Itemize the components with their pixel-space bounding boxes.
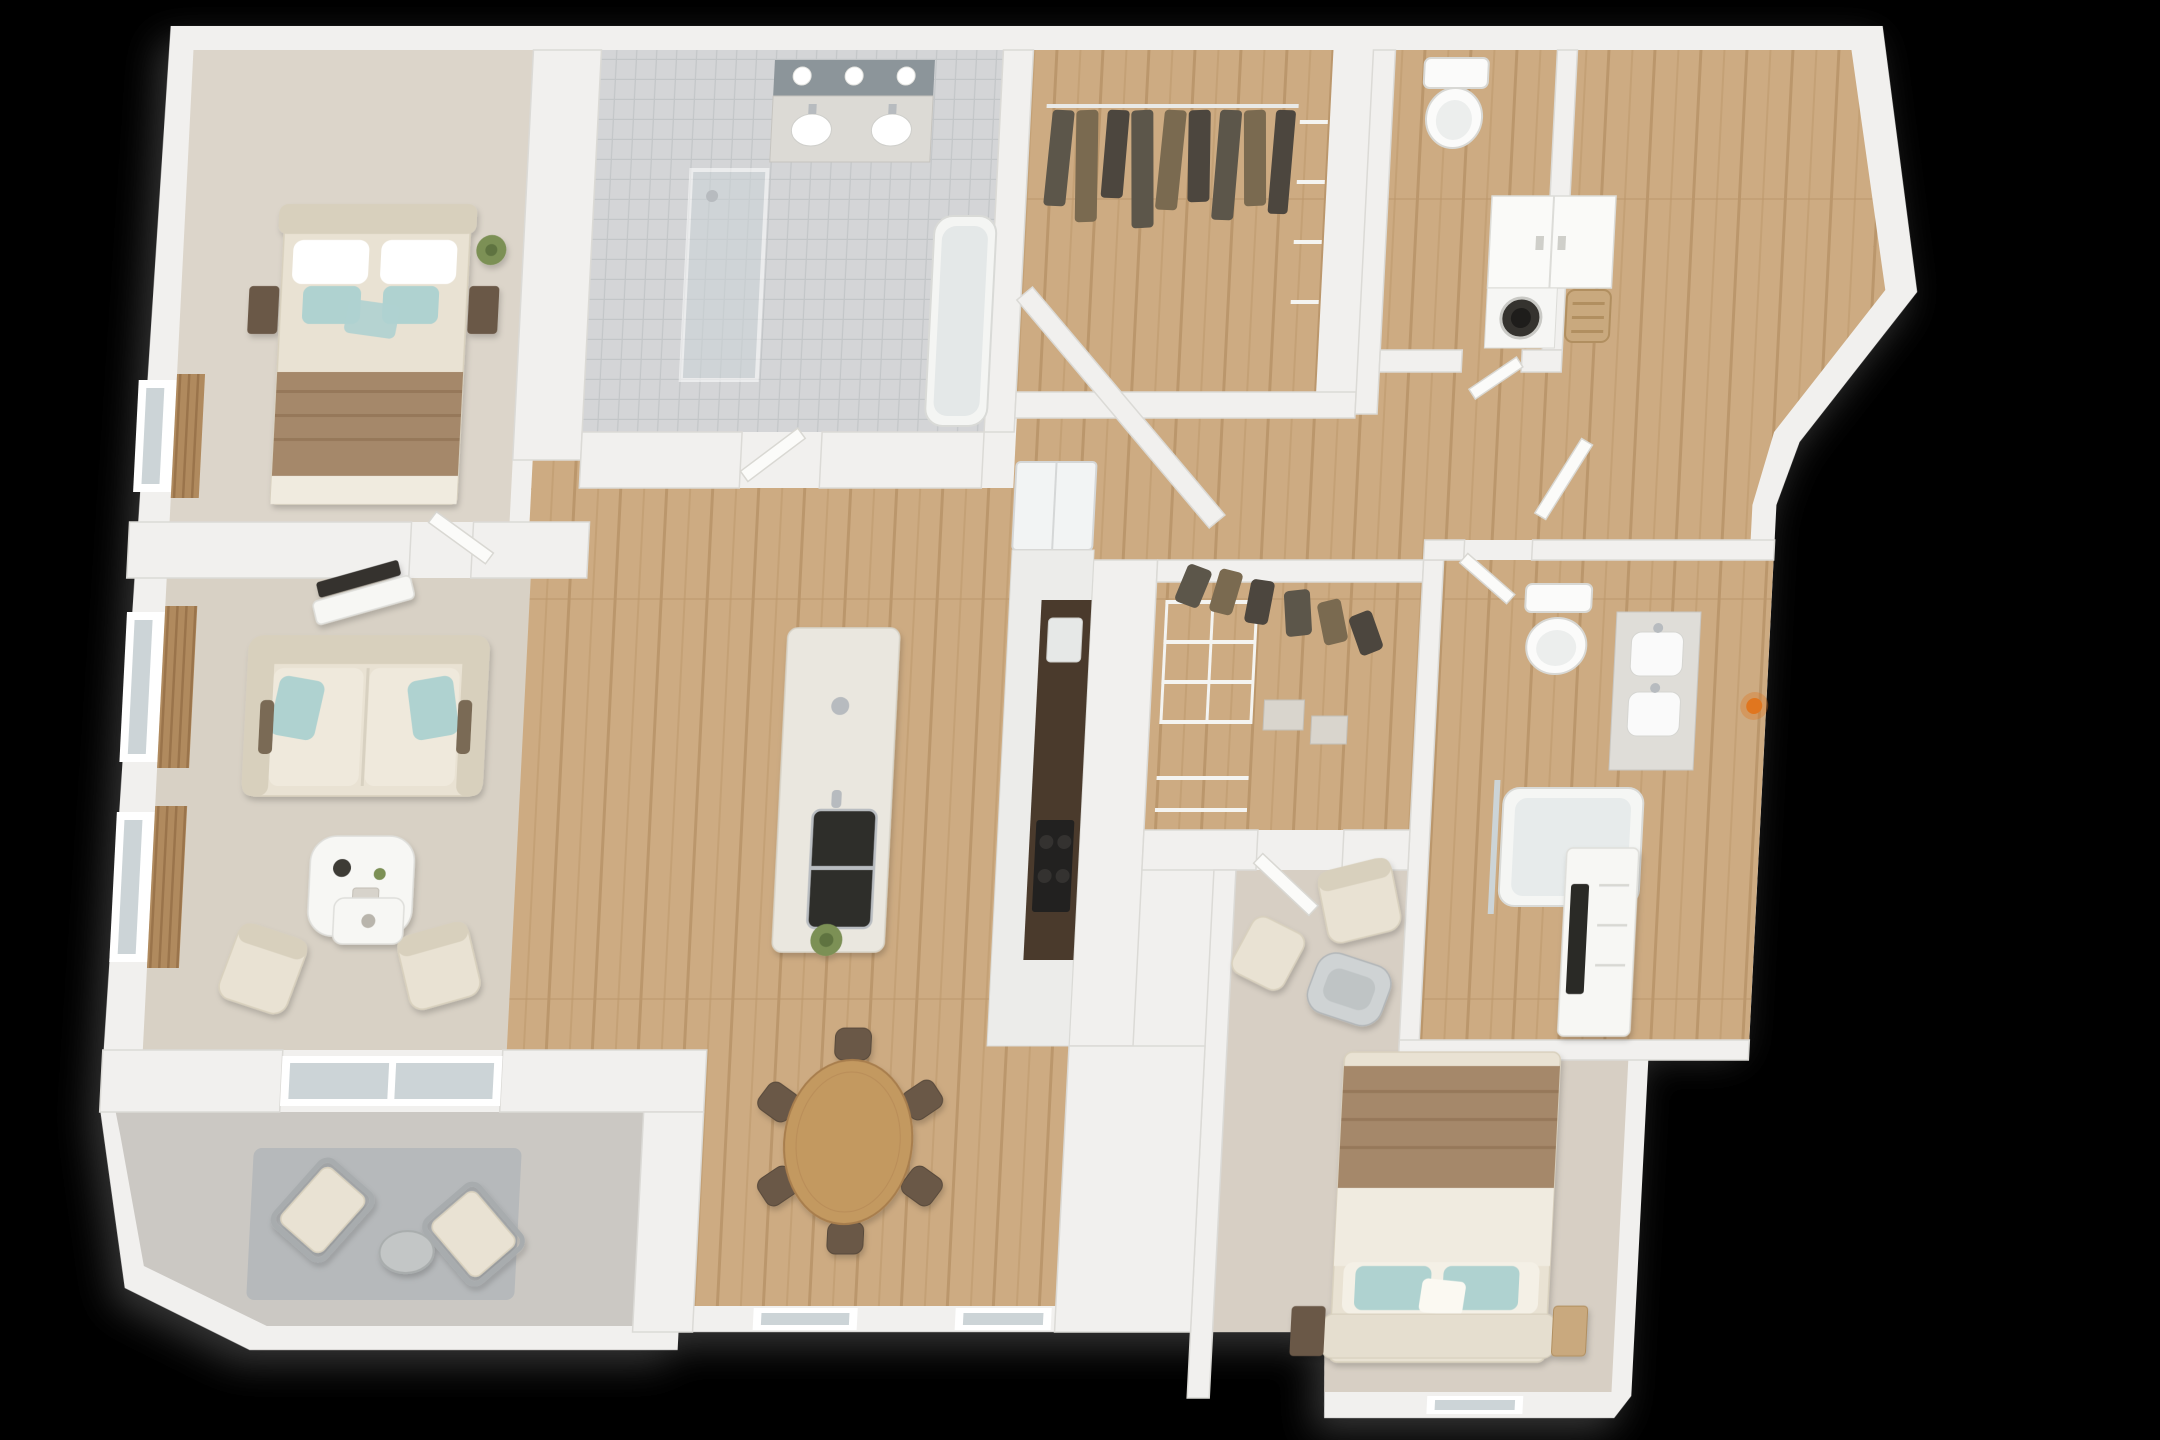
bed2-blanket-stripe [1340, 1146, 1556, 1149]
wall-patio-dining [633, 1112, 704, 1332]
bedroom1-window [133, 374, 205, 498]
wall-living-patio-right [500, 1050, 707, 1112]
dining-window-left [753, 1308, 858, 1330]
closet2-storage-box [1310, 716, 1347, 744]
bath1-faucet-left [808, 104, 817, 114]
sofa-back [248, 636, 489, 664]
patio-side-table [379, 1231, 435, 1273]
bath1-vanity-light [897, 67, 916, 85]
wall-bath1-hall-left [579, 432, 742, 488]
closet1-rod [1047, 104, 1299, 108]
laundry-basket-weave [1573, 302, 1605, 305]
closet1-shelf [1300, 120, 1328, 124]
closet1-clothes [1075, 110, 1099, 223]
closet1-shelf [1294, 240, 1322, 244]
closet2-wire-shelf [1155, 808, 1247, 812]
wall-wc-bottom-left [1379, 350, 1462, 372]
bed2-blanket [1338, 1066, 1560, 1188]
bed1-nightstand-right [467, 286, 499, 334]
sofa-teal-pillow-right [407, 674, 460, 741]
bed1-teal-lumbar [343, 299, 401, 340]
dining-window-right [955, 1308, 1052, 1330]
closet1-clothes [1131, 110, 1153, 229]
wc-toilet-tank [1424, 58, 1490, 88]
bath2-sink-bottom [1627, 692, 1681, 736]
floor-plan-render [0, 0, 2160, 1440]
bed2-wicker-basket [1551, 1306, 1588, 1356]
bed2-nightstand-left [1289, 1306, 1326, 1356]
bath1-shower [681, 170, 768, 380]
bed1-foot-fold [270, 476, 457, 504]
dresser-drawer-line [1597, 924, 1627, 927]
bath1-bathtub-basin [933, 226, 989, 416]
wall-bath2-top-right [1532, 540, 1775, 560]
bath2-toilet-tank [1525, 584, 1592, 612]
sofa-dark-accent-left [258, 700, 275, 754]
laundry-basket-weave [1571, 330, 1603, 333]
dining-chair [834, 1028, 872, 1060]
bed2-blanket-stripe [1343, 1090, 1559, 1093]
laundry-cabinet-handle [1535, 236, 1544, 250]
living-window-lower [109, 806, 187, 968]
island-sink-divider [810, 866, 874, 870]
bed1-pillow-left [292, 240, 370, 284]
closet1-shelf [1291, 300, 1319, 304]
bed2-duvet [1334, 1188, 1554, 1266]
closet1-clothes [1244, 109, 1266, 206]
closet1-clothes [1187, 110, 1210, 203]
patio-sliding-door [280, 1056, 503, 1106]
wall-block-dining-bed2 [1055, 1046, 1205, 1332]
wall-bath2-top-left [1424, 540, 1465, 560]
island-faucet [831, 790, 842, 808]
screenshot-canvas [0, 0, 2160, 1440]
dresser-drawer-line [1595, 964, 1625, 967]
sofa-dark-accent-right [456, 700, 473, 754]
closet1-shelf [1297, 180, 1325, 184]
bed1-blanket-stripe [276, 390, 462, 393]
bedroom2-window [1426, 1396, 1523, 1414]
wall-bed2-top-left [1142, 830, 1258, 870]
closet2-wire-shelf [1156, 776, 1248, 780]
bed1-nightstand-left [247, 286, 279, 334]
living-window-upper [119, 606, 197, 768]
wall-living-patio-left [100, 1050, 283, 1112]
wall-bath1-hall-right [819, 432, 984, 488]
closet2-storage-box [1263, 700, 1305, 730]
bath1-faucet-right [888, 104, 897, 114]
cooktop [1032, 820, 1075, 912]
wall-wc-bottom-right [1521, 350, 1562, 372]
bath2-sink-top [1630, 632, 1684, 676]
kitchen-sink [1046, 618, 1082, 662]
bed2-lumbar-pillow [1418, 1278, 1467, 1316]
dresser-drawer-line [1599, 884, 1629, 887]
dining-chair [826, 1222, 864, 1254]
bed1-headboard [278, 204, 478, 234]
bath1-vanity-light [845, 67, 864, 85]
bath1-vanity-light [793, 67, 812, 85]
kitchen-island [772, 628, 901, 956]
bed1-pillow-right [380, 240, 458, 284]
closet2-clothes [1284, 589, 1312, 637]
laundry-cabinet-handle [1557, 236, 1566, 250]
bed1-blanket-stripe [274, 438, 460, 441]
bed2-blanket-stripe [1341, 1118, 1557, 1121]
bed2-headboard [1321, 1314, 1555, 1358]
bed1-blanket-stripe [275, 414, 461, 417]
bed1-blanket [272, 372, 463, 476]
wall-closet1-corridor [1015, 392, 1356, 418]
laundry-basket-weave [1572, 316, 1604, 319]
